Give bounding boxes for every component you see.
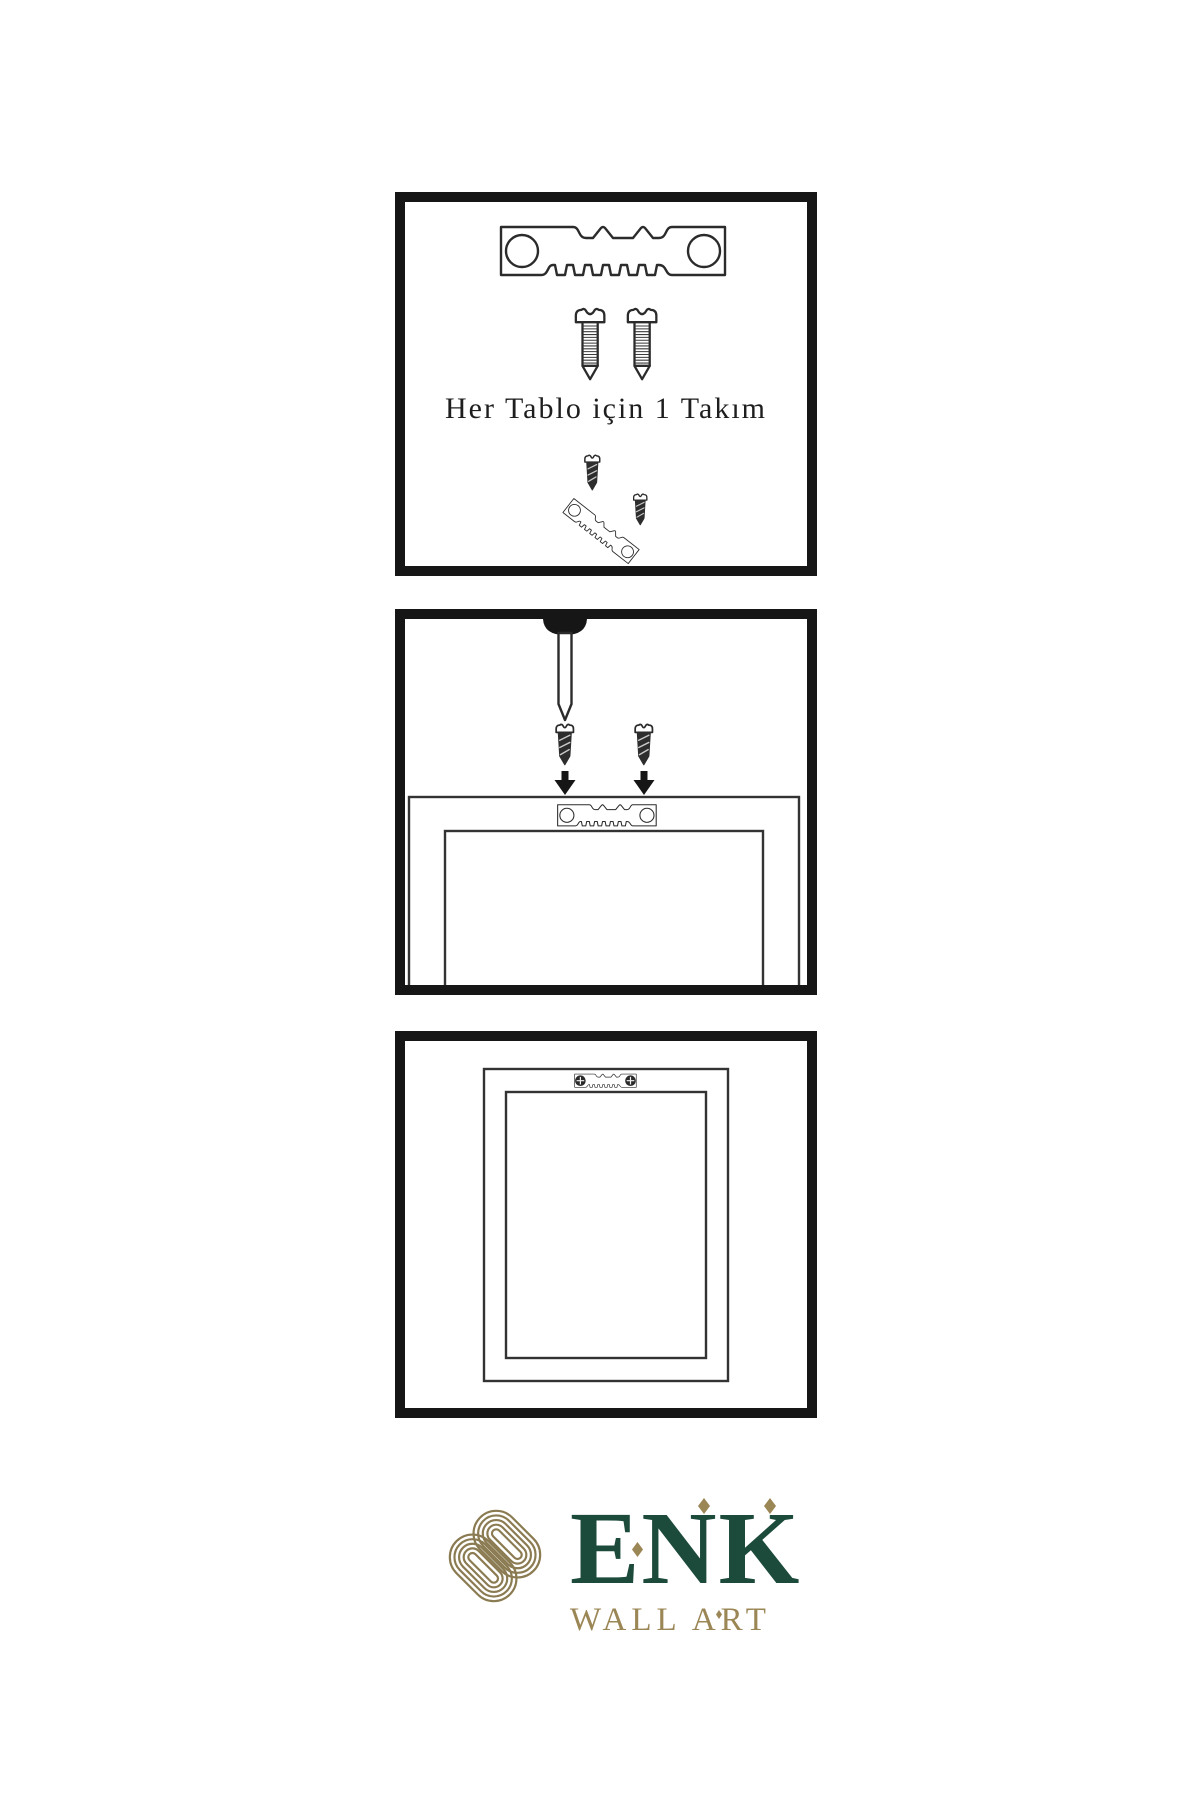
frame-back-inner: [445, 831, 763, 985]
brand-logo: ENK WALL ART: [438, 1492, 958, 1642]
step-1-panel: Her Tablo için 1 Takım: [395, 192, 817, 576]
step-2-panel: [395, 609, 817, 995]
screw-icon: [585, 455, 600, 490]
wall-nail-icon: [543, 619, 587, 720]
step-1-diagram: [405, 202, 807, 566]
step-2-diagram: [405, 619, 807, 985]
sawtooth-hanger-icon: [501, 227, 725, 275]
screw-icon: [635, 724, 652, 764]
kit-caption: Her Tablo için 1 Takım: [405, 392, 807, 426]
brand-text: ENK WALL ART: [570, 1506, 801, 1639]
step-3-panel: [395, 1031, 817, 1418]
down-arrow-icon: [555, 771, 576, 795]
sawtooth-hanger-icon: [563, 499, 639, 564]
instruction-sheet: Her Tablo için 1 Takım: [0, 0, 1200, 1800]
screw-icon: [576, 309, 605, 379]
knot-logo-icon: [438, 1496, 552, 1616]
hanger-assembly-icon: [563, 455, 647, 563]
brand-name: ENK: [570, 1506, 801, 1592]
screw-icon: [556, 724, 573, 764]
screw-icon: [634, 494, 647, 525]
step-3-diagram: [405, 1041, 807, 1408]
screw-icon: [628, 309, 657, 379]
down-arrow-icon: [634, 771, 655, 795]
frame-back-inner: [506, 1092, 706, 1358]
brand-subtitle: WALL ART: [570, 1602, 801, 1639]
